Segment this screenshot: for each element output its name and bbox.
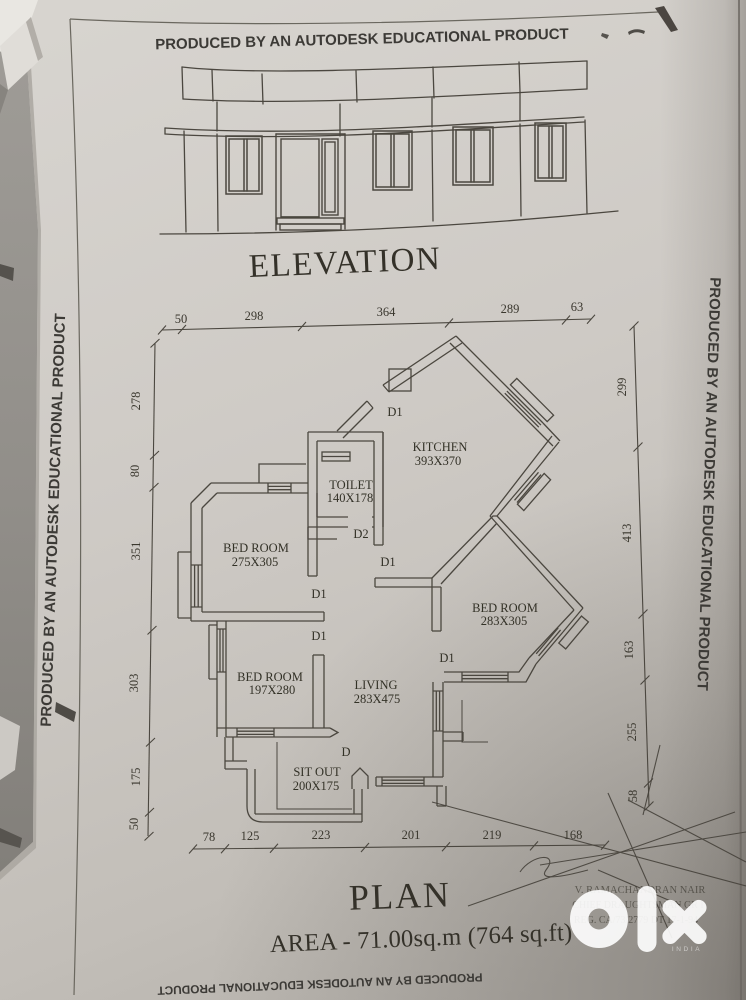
svg-text:275X305: 275X305 — [232, 555, 279, 569]
svg-text:50: 50 — [127, 818, 141, 831]
svg-text:219: 219 — [483, 828, 502, 842]
svg-text:SIT OUT: SIT OUT — [293, 765, 341, 779]
svg-text:299: 299 — [615, 378, 629, 397]
svg-text:200X175: 200X175 — [293, 779, 340, 793]
svg-text:D2: D2 — [353, 527, 368, 541]
svg-text:255: 255 — [625, 723, 639, 742]
svg-text:351: 351 — [129, 542, 143, 561]
svg-text:283X305: 283X305 — [481, 614, 528, 628]
svg-text:D: D — [341, 745, 350, 759]
svg-text:50: 50 — [175, 312, 188, 326]
svg-text:413: 413 — [620, 524, 634, 543]
svg-text:78: 78 — [203, 830, 216, 844]
svg-text:393X370: 393X370 — [415, 454, 462, 468]
svg-text:80: 80 — [128, 465, 142, 478]
svg-text:201: 201 — [402, 828, 421, 842]
svg-text:283X475: 283X475 — [354, 692, 401, 706]
svg-text:LIVING: LIVING — [354, 678, 397, 692]
svg-text:163: 163 — [622, 641, 636, 660]
svg-text:KITCHEN: KITCHEN — [413, 440, 468, 454]
svg-text:D1: D1 — [311, 587, 326, 601]
svg-text:298: 298 — [245, 309, 264, 323]
svg-text:303: 303 — [127, 674, 141, 693]
svg-text:364: 364 — [377, 305, 397, 319]
svg-text:289: 289 — [501, 302, 520, 316]
svg-text:125: 125 — [241, 829, 260, 843]
svg-text:63: 63 — [571, 300, 584, 314]
svg-text:BED ROOM: BED ROOM — [237, 670, 303, 684]
svg-text:140X178: 140X178 — [327, 491, 374, 505]
svg-text:175: 175 — [129, 768, 143, 787]
svg-text:D1: D1 — [387, 405, 402, 419]
svg-text:D1: D1 — [380, 555, 395, 569]
svg-text:278: 278 — [129, 392, 143, 411]
svg-text:D1: D1 — [439, 651, 454, 665]
svg-text:TOILET: TOILET — [329, 478, 373, 492]
svg-text:INDIA: INDIA — [672, 946, 702, 953]
svg-text:197X280: 197X280 — [249, 683, 296, 697]
svg-text:D1: D1 — [311, 629, 326, 643]
svg-text:PLAN: PLAN — [348, 874, 451, 918]
svg-text:223: 223 — [312, 828, 331, 842]
svg-text:BED ROOM: BED ROOM — [472, 601, 538, 615]
svg-text:BED ROOM: BED ROOM — [223, 541, 289, 555]
